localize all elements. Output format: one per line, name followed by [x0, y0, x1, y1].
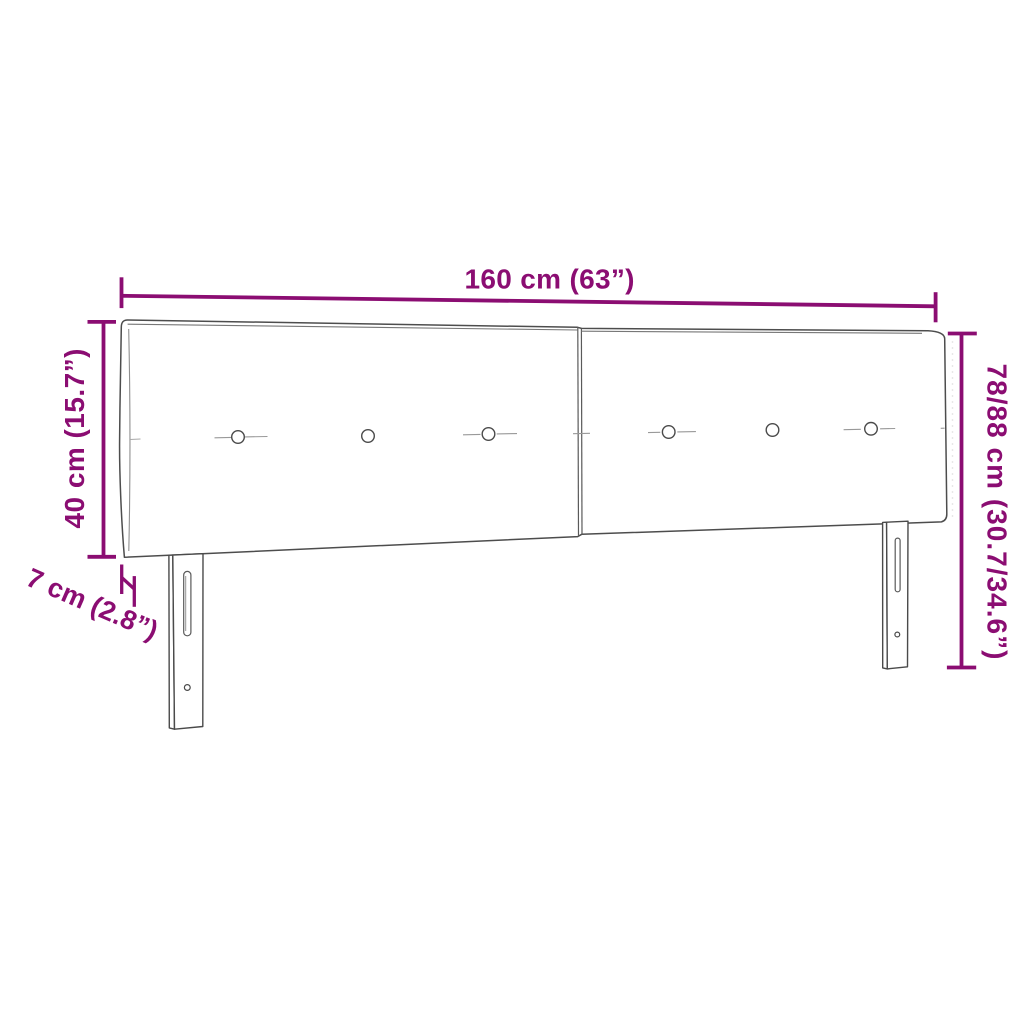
svg-text:40 cm (15.7”): 40 cm (15.7”) [59, 349, 90, 529]
svg-text:160 cm (63”): 160 cm (63”) [465, 264, 635, 295]
svg-text:78/88 cm (30.7/34.6”): 78/88 cm (30.7/34.6”) [982, 364, 1013, 660]
